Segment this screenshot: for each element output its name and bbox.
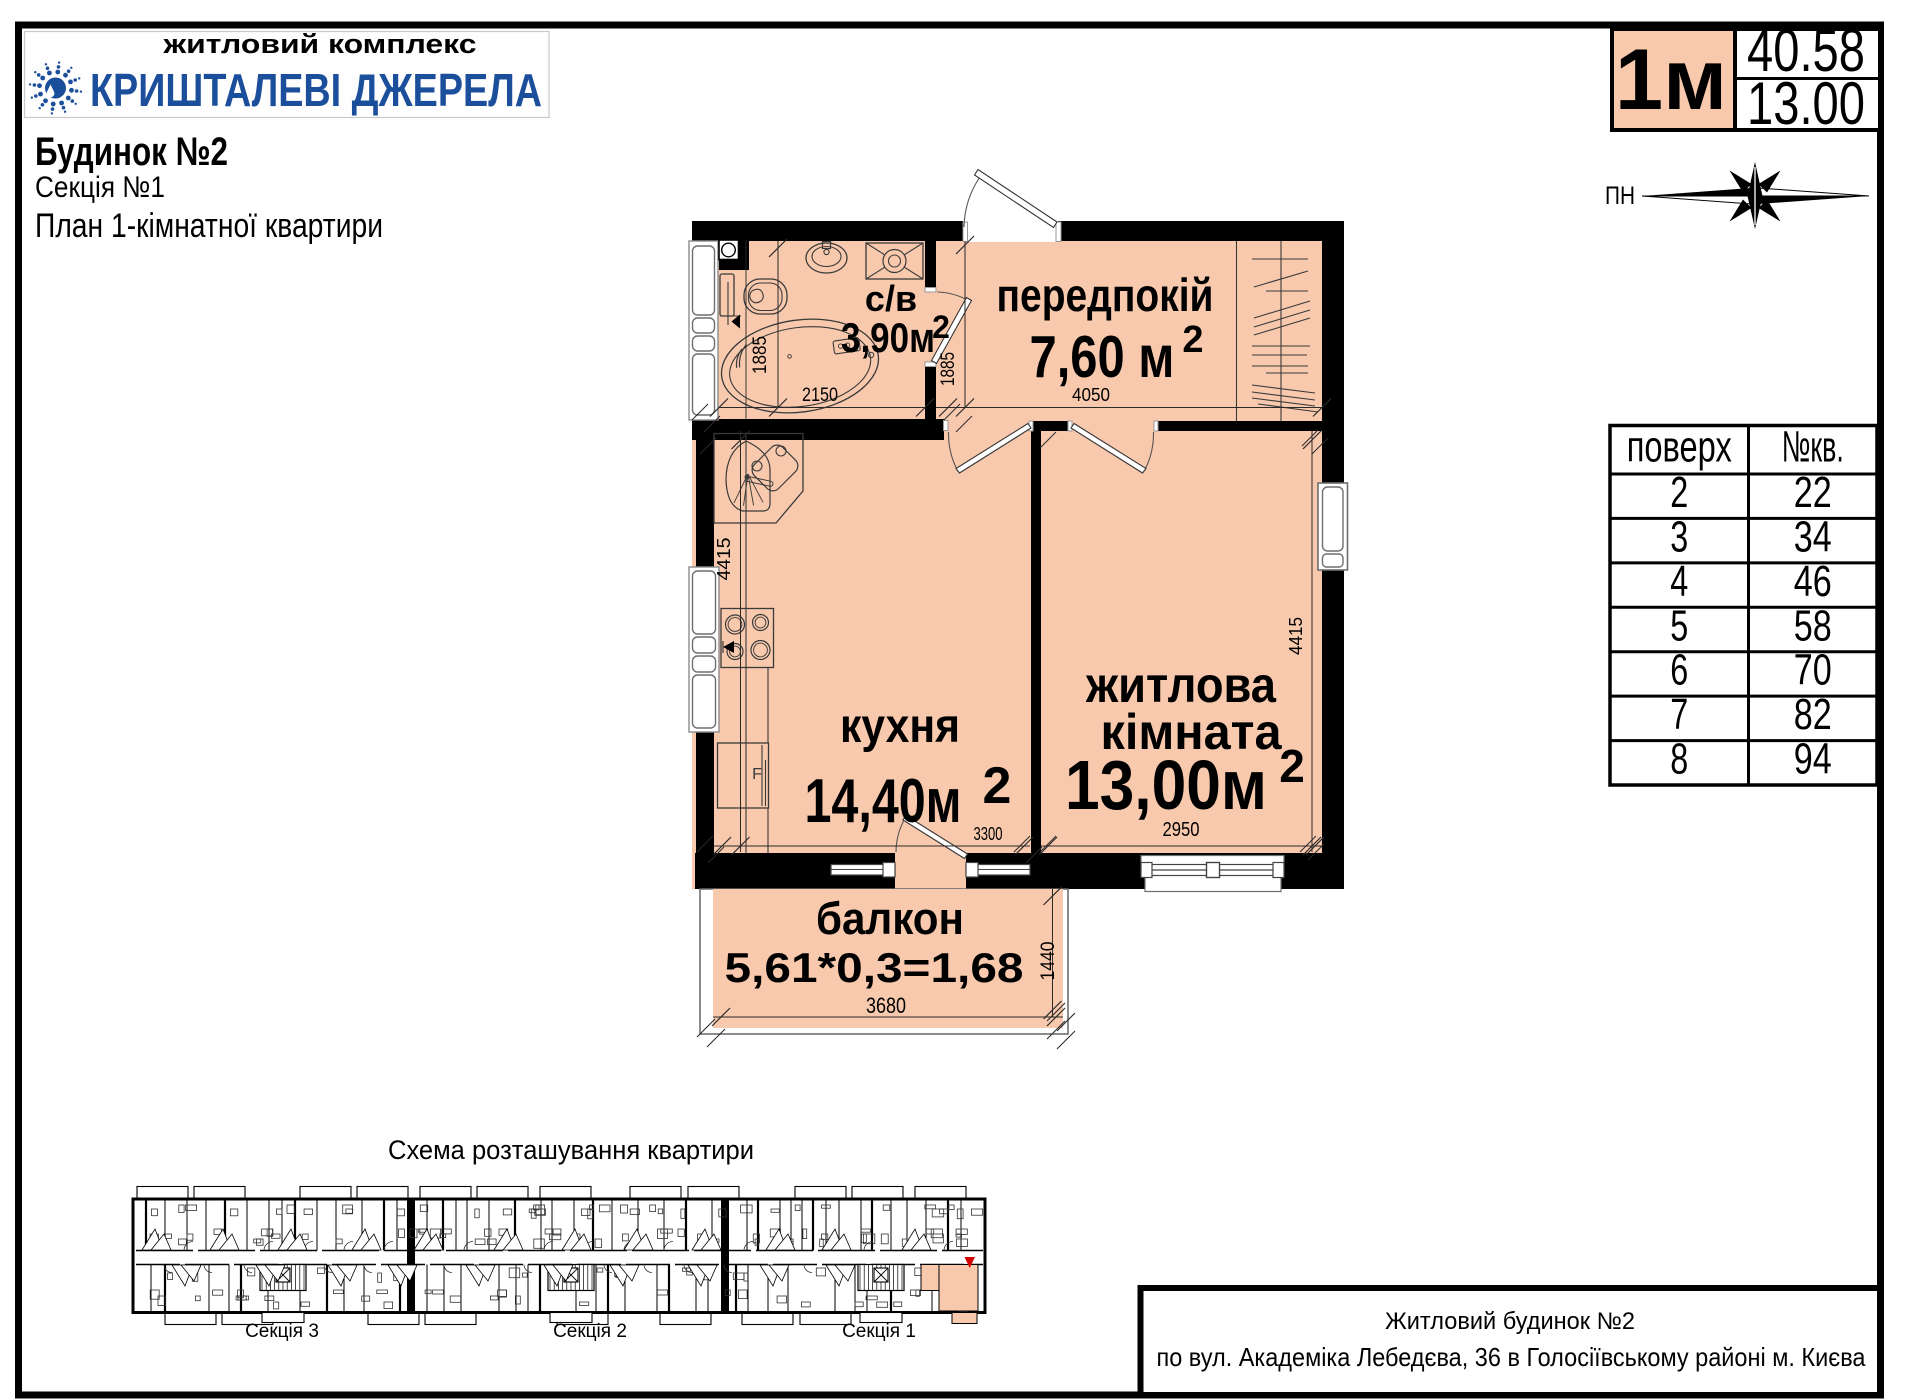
svg-text:Секція №1: Секція №1: [35, 171, 165, 204]
svg-text:70: 70: [1794, 646, 1832, 695]
svg-text:4415: 4415: [714, 538, 734, 581]
svg-text:2: 2: [1279, 740, 1305, 792]
svg-text:F: F: [752, 766, 762, 783]
svg-text:2: 2: [1670, 468, 1688, 517]
svg-text:1885: 1885: [938, 352, 959, 386]
svg-text:2950: 2950: [1163, 819, 1200, 841]
svg-text:Будинок №2: Будинок №2: [35, 130, 228, 174]
svg-text:1440: 1440: [1038, 942, 1059, 981]
svg-text:Секція 3: Секція 3: [245, 1321, 319, 1342]
svg-text:поверх: поверх: [1627, 423, 1732, 472]
svg-text:34: 34: [1794, 512, 1832, 561]
svg-text:58: 58: [1794, 601, 1832, 650]
svg-text:2: 2: [983, 757, 1012, 815]
svg-text:ПН: ПН: [1605, 182, 1635, 210]
svg-text:7: 7: [1670, 690, 1688, 739]
svg-text:4: 4: [1670, 557, 1688, 606]
svg-text:Житловий будинок №2: Житловий будинок №2: [1385, 1308, 1635, 1335]
svg-text:Секція 2: Секція 2: [553, 1321, 627, 1342]
svg-text:14,40м: 14,40м: [805, 767, 962, 836]
svg-text:по вул. Академіка Лебедєва, 36: по вул. Академіка Лебедєва, 36 в Голосії…: [1157, 1342, 1866, 1372]
svg-text:Секція 1: Секція 1: [842, 1321, 916, 1342]
svg-text:13,00м: 13,00м: [1065, 746, 1267, 824]
svg-text:5: 5: [1670, 601, 1688, 650]
svg-text:2: 2: [1182, 319, 1203, 361]
svg-text:82: 82: [1794, 690, 1832, 739]
svg-text:житловий комплекс: житловий комплекс: [162, 29, 476, 59]
svg-text:Схема розташування квартири: Схема розташування квартири: [388, 1135, 754, 1165]
svg-text:3: 3: [1670, 512, 1688, 561]
svg-text:кухня: кухня: [840, 700, 960, 753]
svg-text:8: 8: [1670, 735, 1688, 784]
svg-text:передпокій: передпокій: [997, 269, 1214, 321]
svg-text:КРИШТАЛЕВІ ДЖЕРЕЛА: КРИШТАЛЕВІ ДЖЕРЕЛА: [90, 64, 542, 116]
svg-text:с/в: с/в: [865, 278, 917, 319]
svg-text:1885: 1885: [750, 336, 771, 374]
svg-text:3680: 3680: [866, 993, 906, 1018]
svg-text:2150: 2150: [802, 385, 838, 406]
svg-text:3,90м: 3,90м: [841, 314, 935, 361]
svg-text:4415: 4415: [1286, 617, 1306, 655]
svg-text:3300: 3300: [974, 824, 1003, 844]
svg-text:7,60 м: 7,60 м: [1030, 324, 1175, 390]
svg-text:5,61*0,3=1,68: 5,61*0,3=1,68: [725, 944, 1024, 991]
svg-text:46: 46: [1794, 557, 1832, 606]
svg-text:94: 94: [1794, 735, 1832, 784]
svg-text:22: 22: [1794, 468, 1832, 517]
svg-text:2: 2: [932, 309, 950, 345]
svg-text:балкон: балкон: [816, 893, 964, 944]
svg-text:№кв.: №кв.: [1782, 423, 1844, 472]
svg-text:4050: 4050: [1072, 385, 1110, 405]
svg-text:6: 6: [1670, 646, 1688, 695]
svg-text:13.00: 13.00: [1747, 70, 1865, 137]
svg-text:План 1-кімнатної квартири: План 1-кімнатної квартири: [35, 207, 383, 245]
svg-text:1м: 1м: [1615, 32, 1727, 128]
